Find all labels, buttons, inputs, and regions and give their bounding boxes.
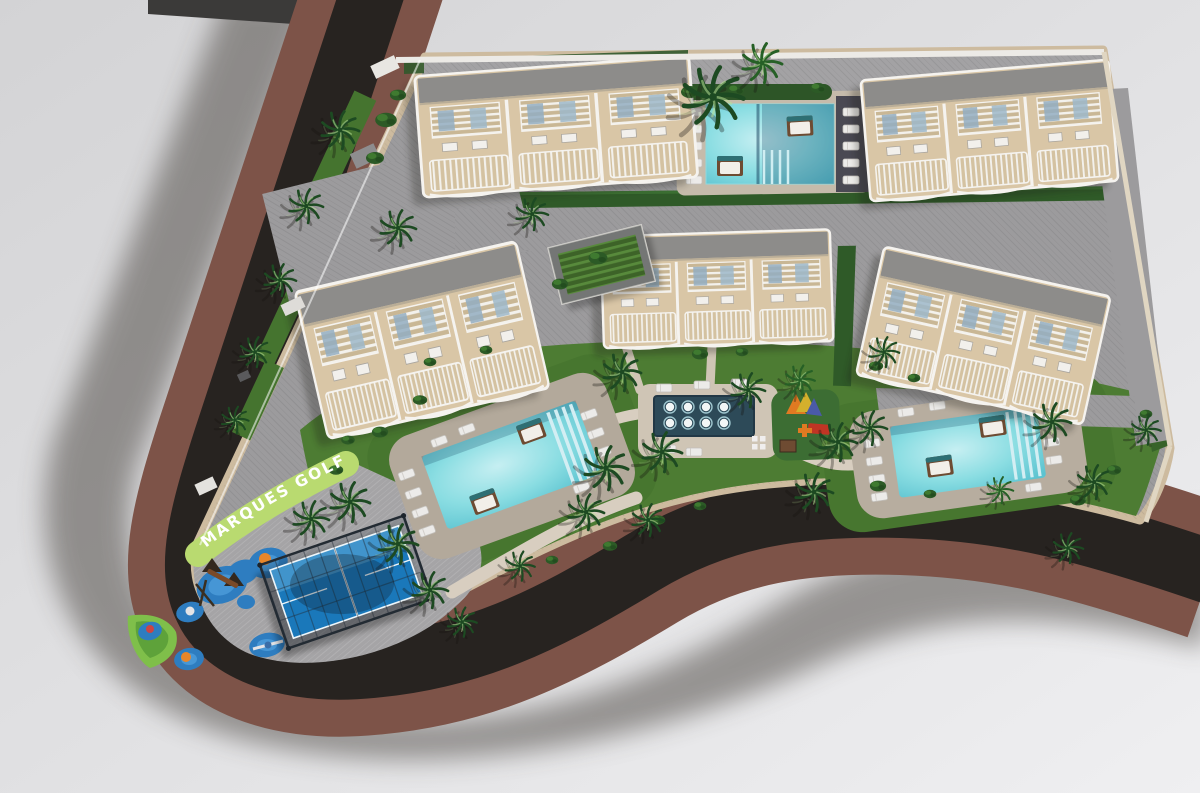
sun-lounger [843, 176, 859, 184]
bush-icon [552, 279, 568, 290]
daybed [717, 156, 743, 176]
sun-lounger [694, 381, 710, 389]
bush-icon [870, 481, 886, 492]
building-top-left-block [415, 56, 698, 200]
sun-lounger [656, 384, 672, 392]
bush-icon [413, 395, 427, 405]
bush-icon [341, 436, 355, 445]
bush-icon [390, 90, 406, 101]
daybed [786, 115, 813, 136]
fountain-jet [666, 419, 674, 427]
bush-icon [1140, 410, 1153, 418]
bush-icon [366, 152, 384, 164]
bush-icon [694, 502, 707, 510]
spring-toy-orange [181, 652, 191, 662]
daybed [925, 454, 954, 477]
spring-toy-red [146, 625, 154, 633]
bush-icon [810, 83, 825, 93]
seesaw-pivot [265, 642, 272, 649]
fountain-jet [684, 403, 692, 411]
sun-lounger [1025, 482, 1042, 492]
sun-lounger [686, 448, 702, 456]
sun-lounger [897, 407, 914, 417]
play-brown-box [780, 440, 796, 452]
fountain-jet [702, 403, 710, 411]
sun-lounger [871, 492, 888, 502]
spring-toy-white [186, 607, 195, 616]
daybed [978, 415, 1007, 438]
fountain-jet [720, 403, 728, 411]
bush-icon [424, 358, 437, 366]
bush-icon [375, 113, 397, 127]
fountain-jet [702, 419, 710, 427]
bush-icon [480, 346, 493, 354]
building-top-right-block [861, 60, 1119, 204]
sun-lounger [866, 456, 883, 466]
bush-icon [736, 348, 749, 356]
bush-icon [924, 490, 937, 498]
splash-pad [638, 379, 778, 458]
fountain-jet [684, 419, 692, 427]
aerial-render-canvas: MARQUES GOLF [0, 0, 1200, 793]
bush-icon [908, 374, 921, 382]
bush-icon [692, 349, 708, 360]
play-cross-b [802, 424, 807, 437]
bush-icon [1107, 465, 1121, 475]
fountain-jet [666, 403, 674, 411]
fountain-jet [720, 419, 728, 427]
sun-lounger [1045, 455, 1062, 465]
bush-icon [603, 541, 617, 551]
bush-icon [589, 252, 608, 265]
bush-icon [372, 427, 388, 438]
bush-icon [546, 556, 559, 564]
site-plan-render: MARQUES GOLF [0, 0, 1200, 793]
